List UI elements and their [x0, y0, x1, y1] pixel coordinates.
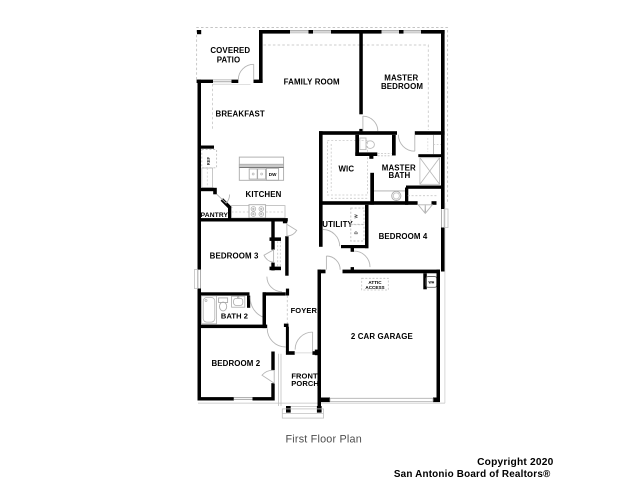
svg-text:2 CAR GARAGE: 2 CAR GARAGE [351, 332, 413, 341]
svg-text:BATH 2: BATH 2 [221, 311, 248, 320]
svg-text:San Antonio Board of Realtors®: San Antonio Board of Realtors® [394, 469, 551, 480]
svg-text:MASTER: MASTER [384, 74, 418, 83]
svg-text:BATH: BATH [388, 171, 410, 180]
svg-text:WIC: WIC [338, 165, 354, 174]
svg-text:BREAKFAST: BREAKFAST [216, 109, 265, 118]
svg-text:UTILITY: UTILITY [322, 220, 353, 229]
svg-text:COVERED: COVERED [210, 46, 250, 55]
svg-text:BEDROOM 3: BEDROOM 3 [210, 252, 259, 261]
svg-text:BEDROOM 4: BEDROOM 4 [379, 232, 428, 241]
svg-text:First Floor Plan: First Floor Plan [286, 433, 362, 445]
svg-text:W: W [353, 214, 358, 218]
svg-text:D: D [353, 231, 358, 234]
svg-text:ACCESS: ACCESS [365, 285, 384, 290]
svg-text:BEDROOM 2: BEDROOM 2 [211, 359, 260, 368]
svg-text:REF: REF [206, 156, 211, 165]
svg-text:DW: DW [269, 172, 277, 177]
svg-text:FOYER: FOYER [291, 306, 318, 315]
svg-text:PANTRY: PANTRY [201, 212, 229, 219]
svg-text:Copyright 2020: Copyright 2020 [477, 457, 554, 468]
svg-text:PORCH: PORCH [291, 379, 319, 388]
svg-text:KITCHEN: KITCHEN [246, 190, 282, 199]
svg-text:PATIO: PATIO [217, 56, 241, 65]
svg-text:BEDROOM: BEDROOM [381, 82, 423, 91]
svg-text:WH: WH [428, 280, 434, 284]
svg-text:FAMILY ROOM: FAMILY ROOM [284, 78, 340, 87]
